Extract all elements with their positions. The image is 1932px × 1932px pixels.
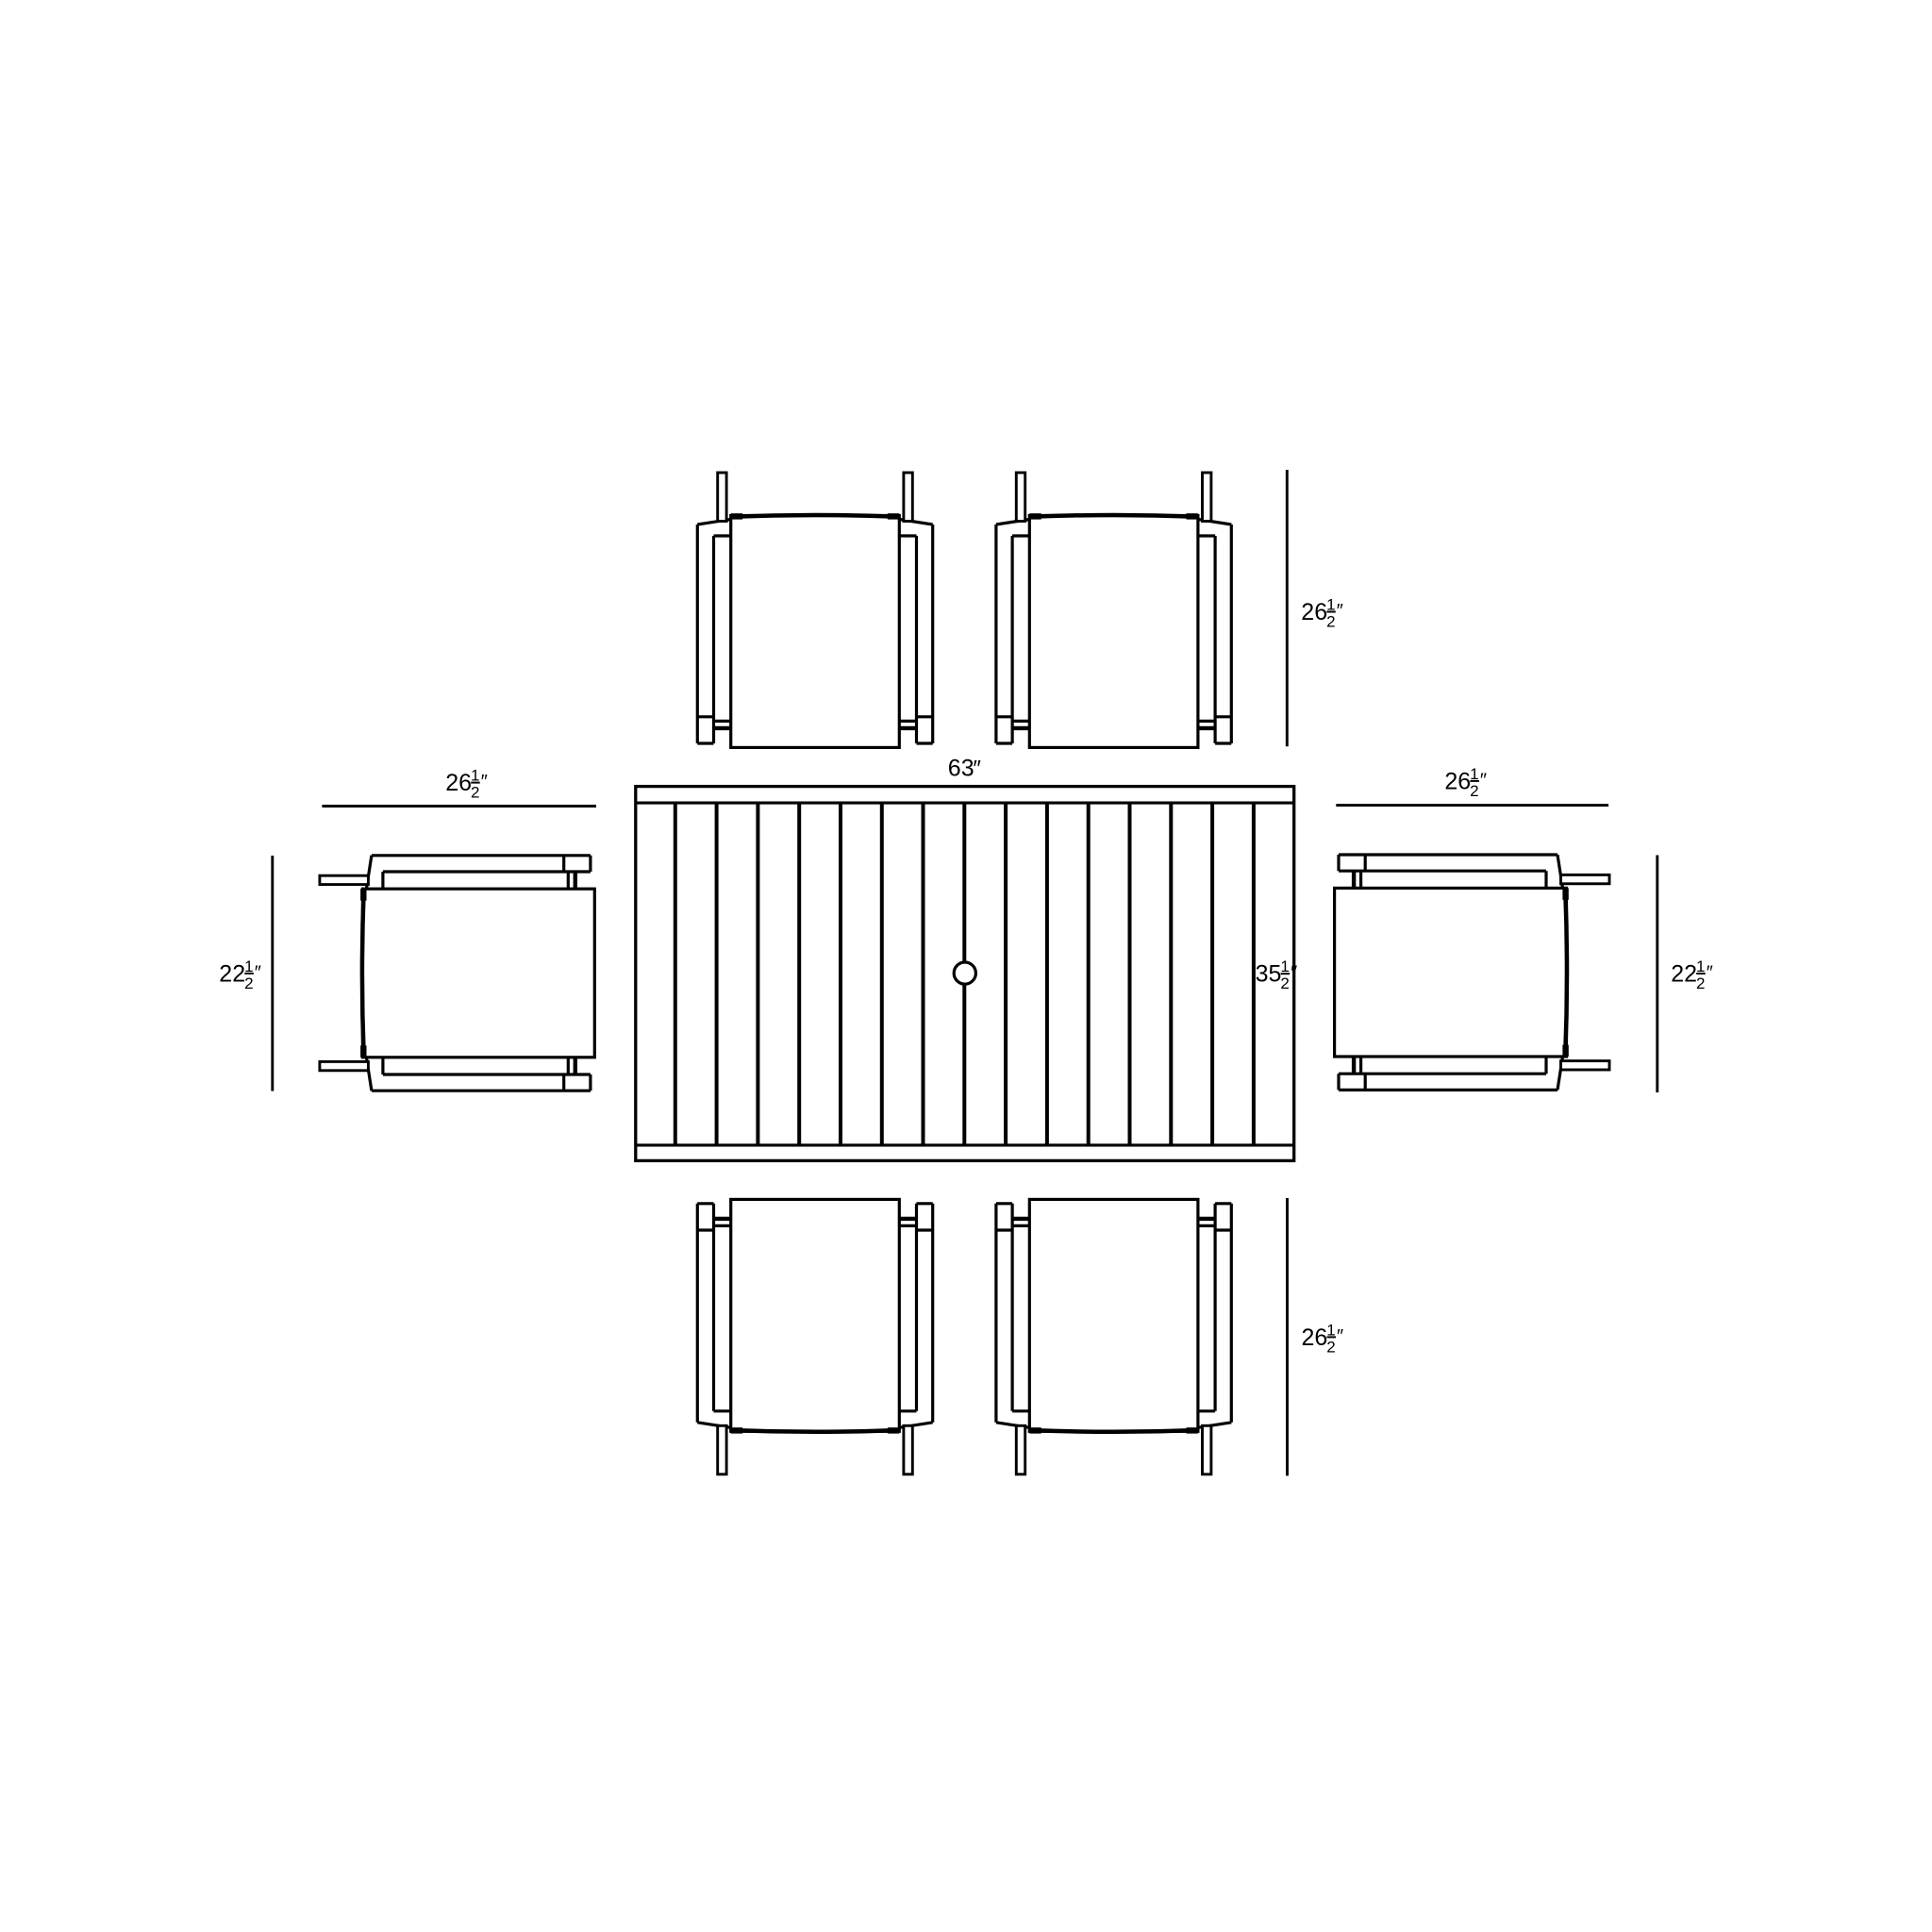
svg-text:2: 2 xyxy=(1470,782,1478,800)
svg-text:″: ″ xyxy=(1707,963,1713,984)
svg-text:2: 2 xyxy=(244,974,253,992)
svg-text:26: 26 xyxy=(1302,1324,1328,1351)
svg-text:35: 35 xyxy=(1256,961,1282,988)
svg-text:2: 2 xyxy=(1326,613,1335,631)
svg-text:″: ″ xyxy=(1337,601,1343,622)
svg-text:22: 22 xyxy=(1671,961,1697,988)
svg-text:″: ″ xyxy=(1291,963,1297,984)
svg-text:2: 2 xyxy=(1280,974,1289,992)
svg-text:2: 2 xyxy=(1326,1338,1335,1356)
svg-text:26: 26 xyxy=(445,770,472,796)
svg-text:22: 22 xyxy=(219,960,245,987)
svg-text:″: ″ xyxy=(973,756,981,781)
svg-text:″: ″ xyxy=(481,772,488,792)
svg-text:2: 2 xyxy=(471,784,479,802)
svg-text:26: 26 xyxy=(1301,599,1327,625)
svg-text:″: ″ xyxy=(255,962,261,983)
svg-text:″: ″ xyxy=(1337,1326,1343,1347)
svg-text:63: 63 xyxy=(948,755,974,781)
svg-text:26: 26 xyxy=(1444,768,1471,794)
svg-text:2: 2 xyxy=(1696,974,1705,992)
svg-text:″: ″ xyxy=(1480,770,1487,791)
